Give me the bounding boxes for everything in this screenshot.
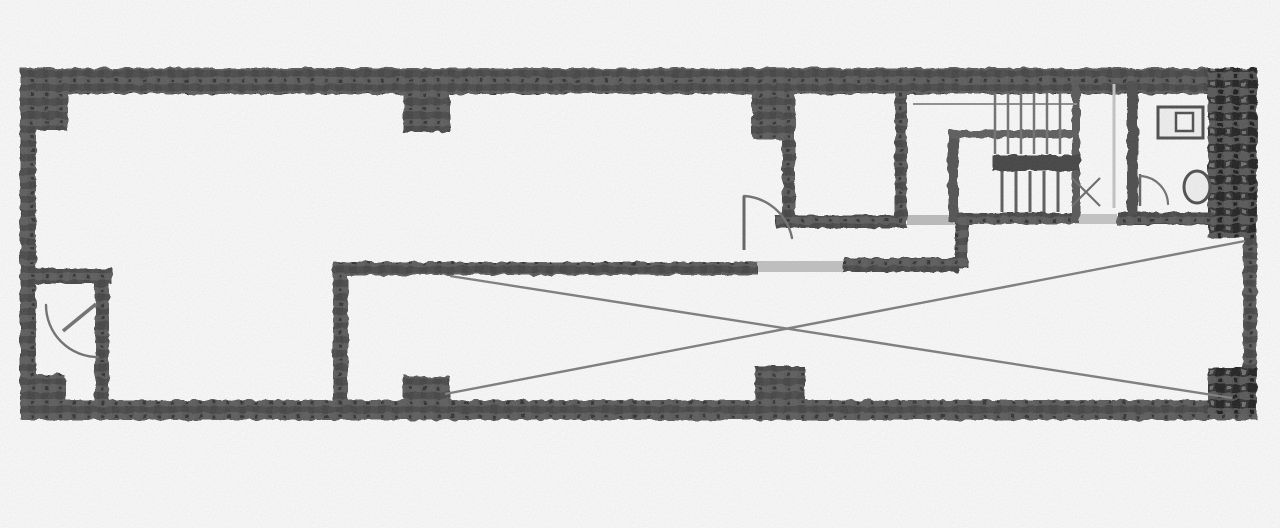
stair-mid-landing-wall (993, 155, 1080, 171)
pillar-bottom-a (403, 376, 450, 416)
wc-wall-right (95, 268, 109, 414)
outer-wall-top (20, 68, 1257, 94)
void-wall-top-east (843, 258, 958, 272)
pillar-top-a (403, 68, 450, 132)
void-wall-left (333, 262, 348, 414)
pillar-bottom-right (1208, 368, 1257, 414)
toilet-bowl (1184, 171, 1210, 203)
stair-inner-wall-vertical (948, 130, 958, 223)
outer-wall-bottom (20, 400, 1257, 420)
floor-plan-scan (0, 0, 1280, 528)
elevator-wall-south (775, 215, 907, 228)
elevator-wall-east (895, 88, 907, 222)
doorway-threshold-toilet (1077, 214, 1117, 224)
doorway-threshold-main (747, 261, 843, 272)
pillar-bottom-left (20, 374, 66, 418)
pillar-bottom-b (755, 366, 805, 414)
stair-wall-south (962, 213, 1077, 224)
elevator-wall-west (782, 72, 795, 228)
doorway-threshold-stair (907, 215, 955, 225)
shaft-wall-right-upper (1208, 68, 1257, 238)
floor-plan-svg (0, 0, 1280, 528)
toilet-cistern-inner (1176, 113, 1193, 131)
toilet-partition-wall (1127, 82, 1138, 215)
corner-pillar-top-left (20, 68, 68, 130)
void-wall-top-west (333, 262, 757, 275)
